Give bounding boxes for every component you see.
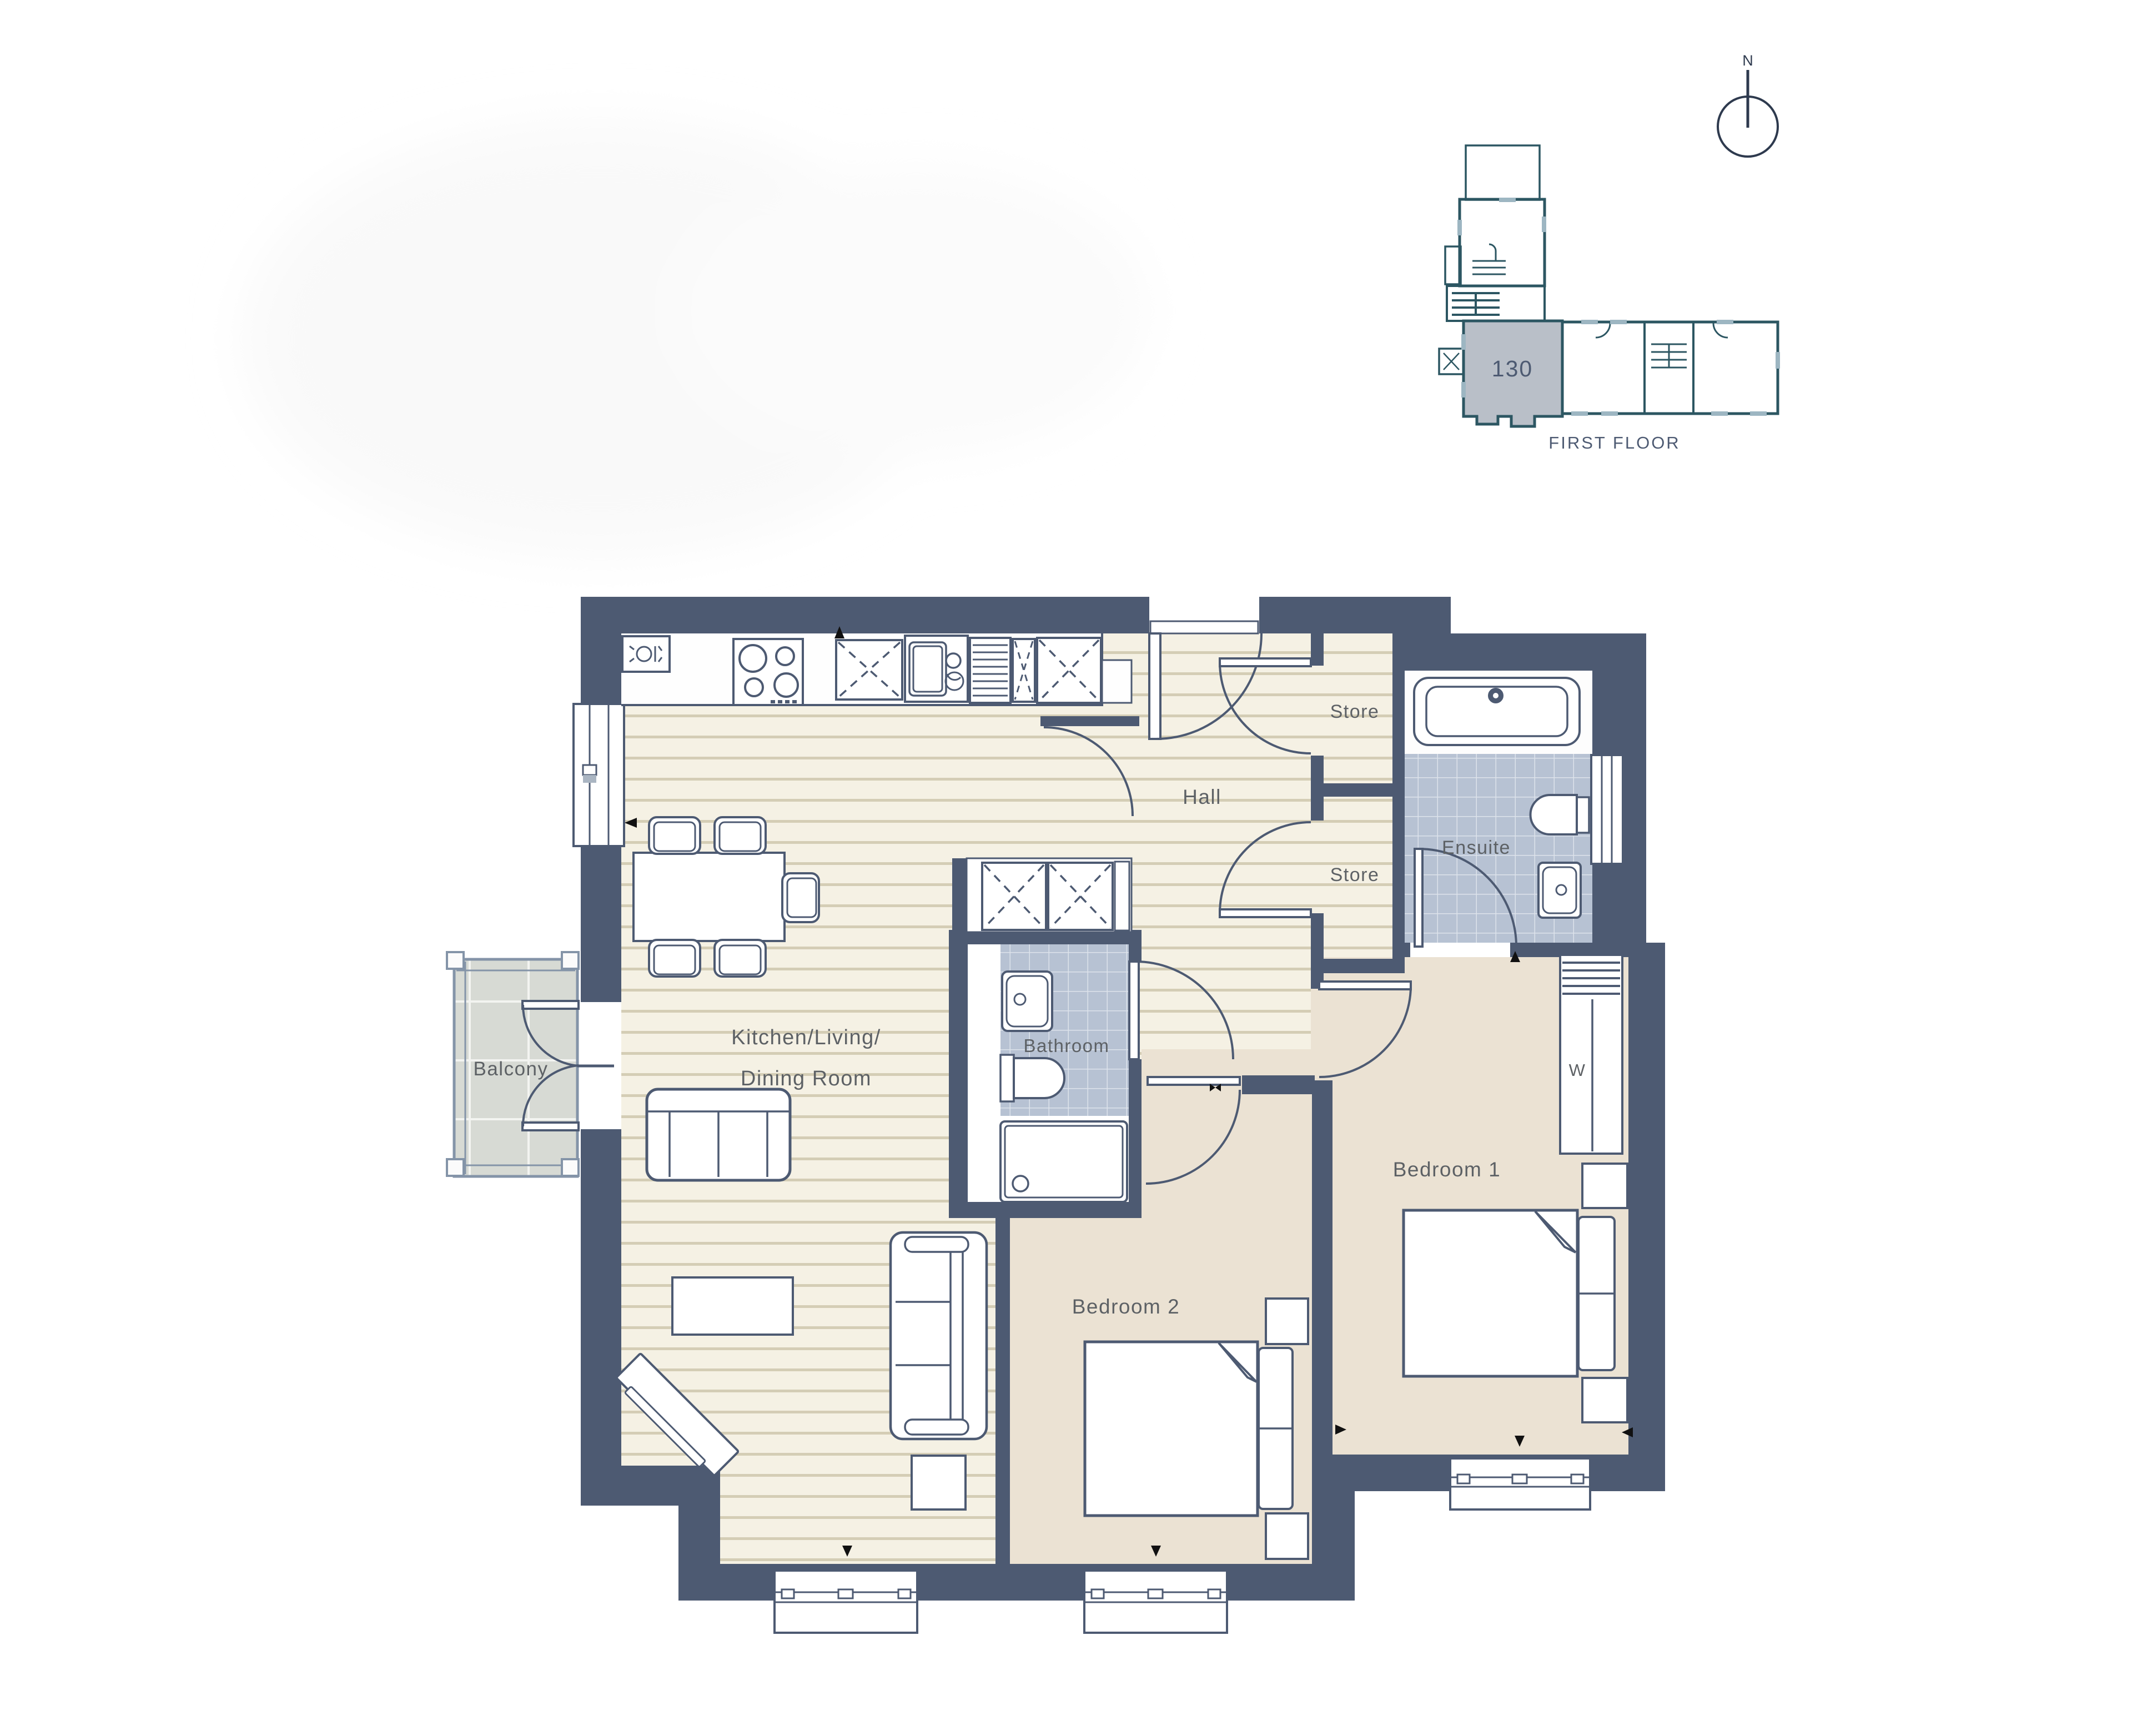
svg-text:Ensuite: Ensuite [1442, 837, 1511, 858]
svg-text:FIRST FLOOR: FIRST FLOOR [1548, 433, 1680, 452]
svg-text:Bathroom: Bathroom [1023, 1035, 1109, 1056]
svg-text:N: N [1742, 52, 1753, 69]
svg-text:Kitchen/Living/: Kitchen/Living/ [731, 1026, 881, 1049]
svg-text:Store: Store [1330, 864, 1380, 885]
svg-text:Bedroom 1: Bedroom 1 [1393, 1158, 1501, 1181]
svg-text:Store: Store [1330, 701, 1380, 722]
svg-text:W: W [1569, 1060, 1586, 1080]
svg-text:130: 130 [1492, 356, 1533, 381]
svg-text:Balcony: Balcony [473, 1058, 548, 1080]
svg-text:Bedroom 2: Bedroom 2 [1072, 1295, 1180, 1318]
svg-text:Dining Room: Dining Room [741, 1067, 872, 1090]
svg-text:Hall: Hall [1183, 786, 1221, 808]
